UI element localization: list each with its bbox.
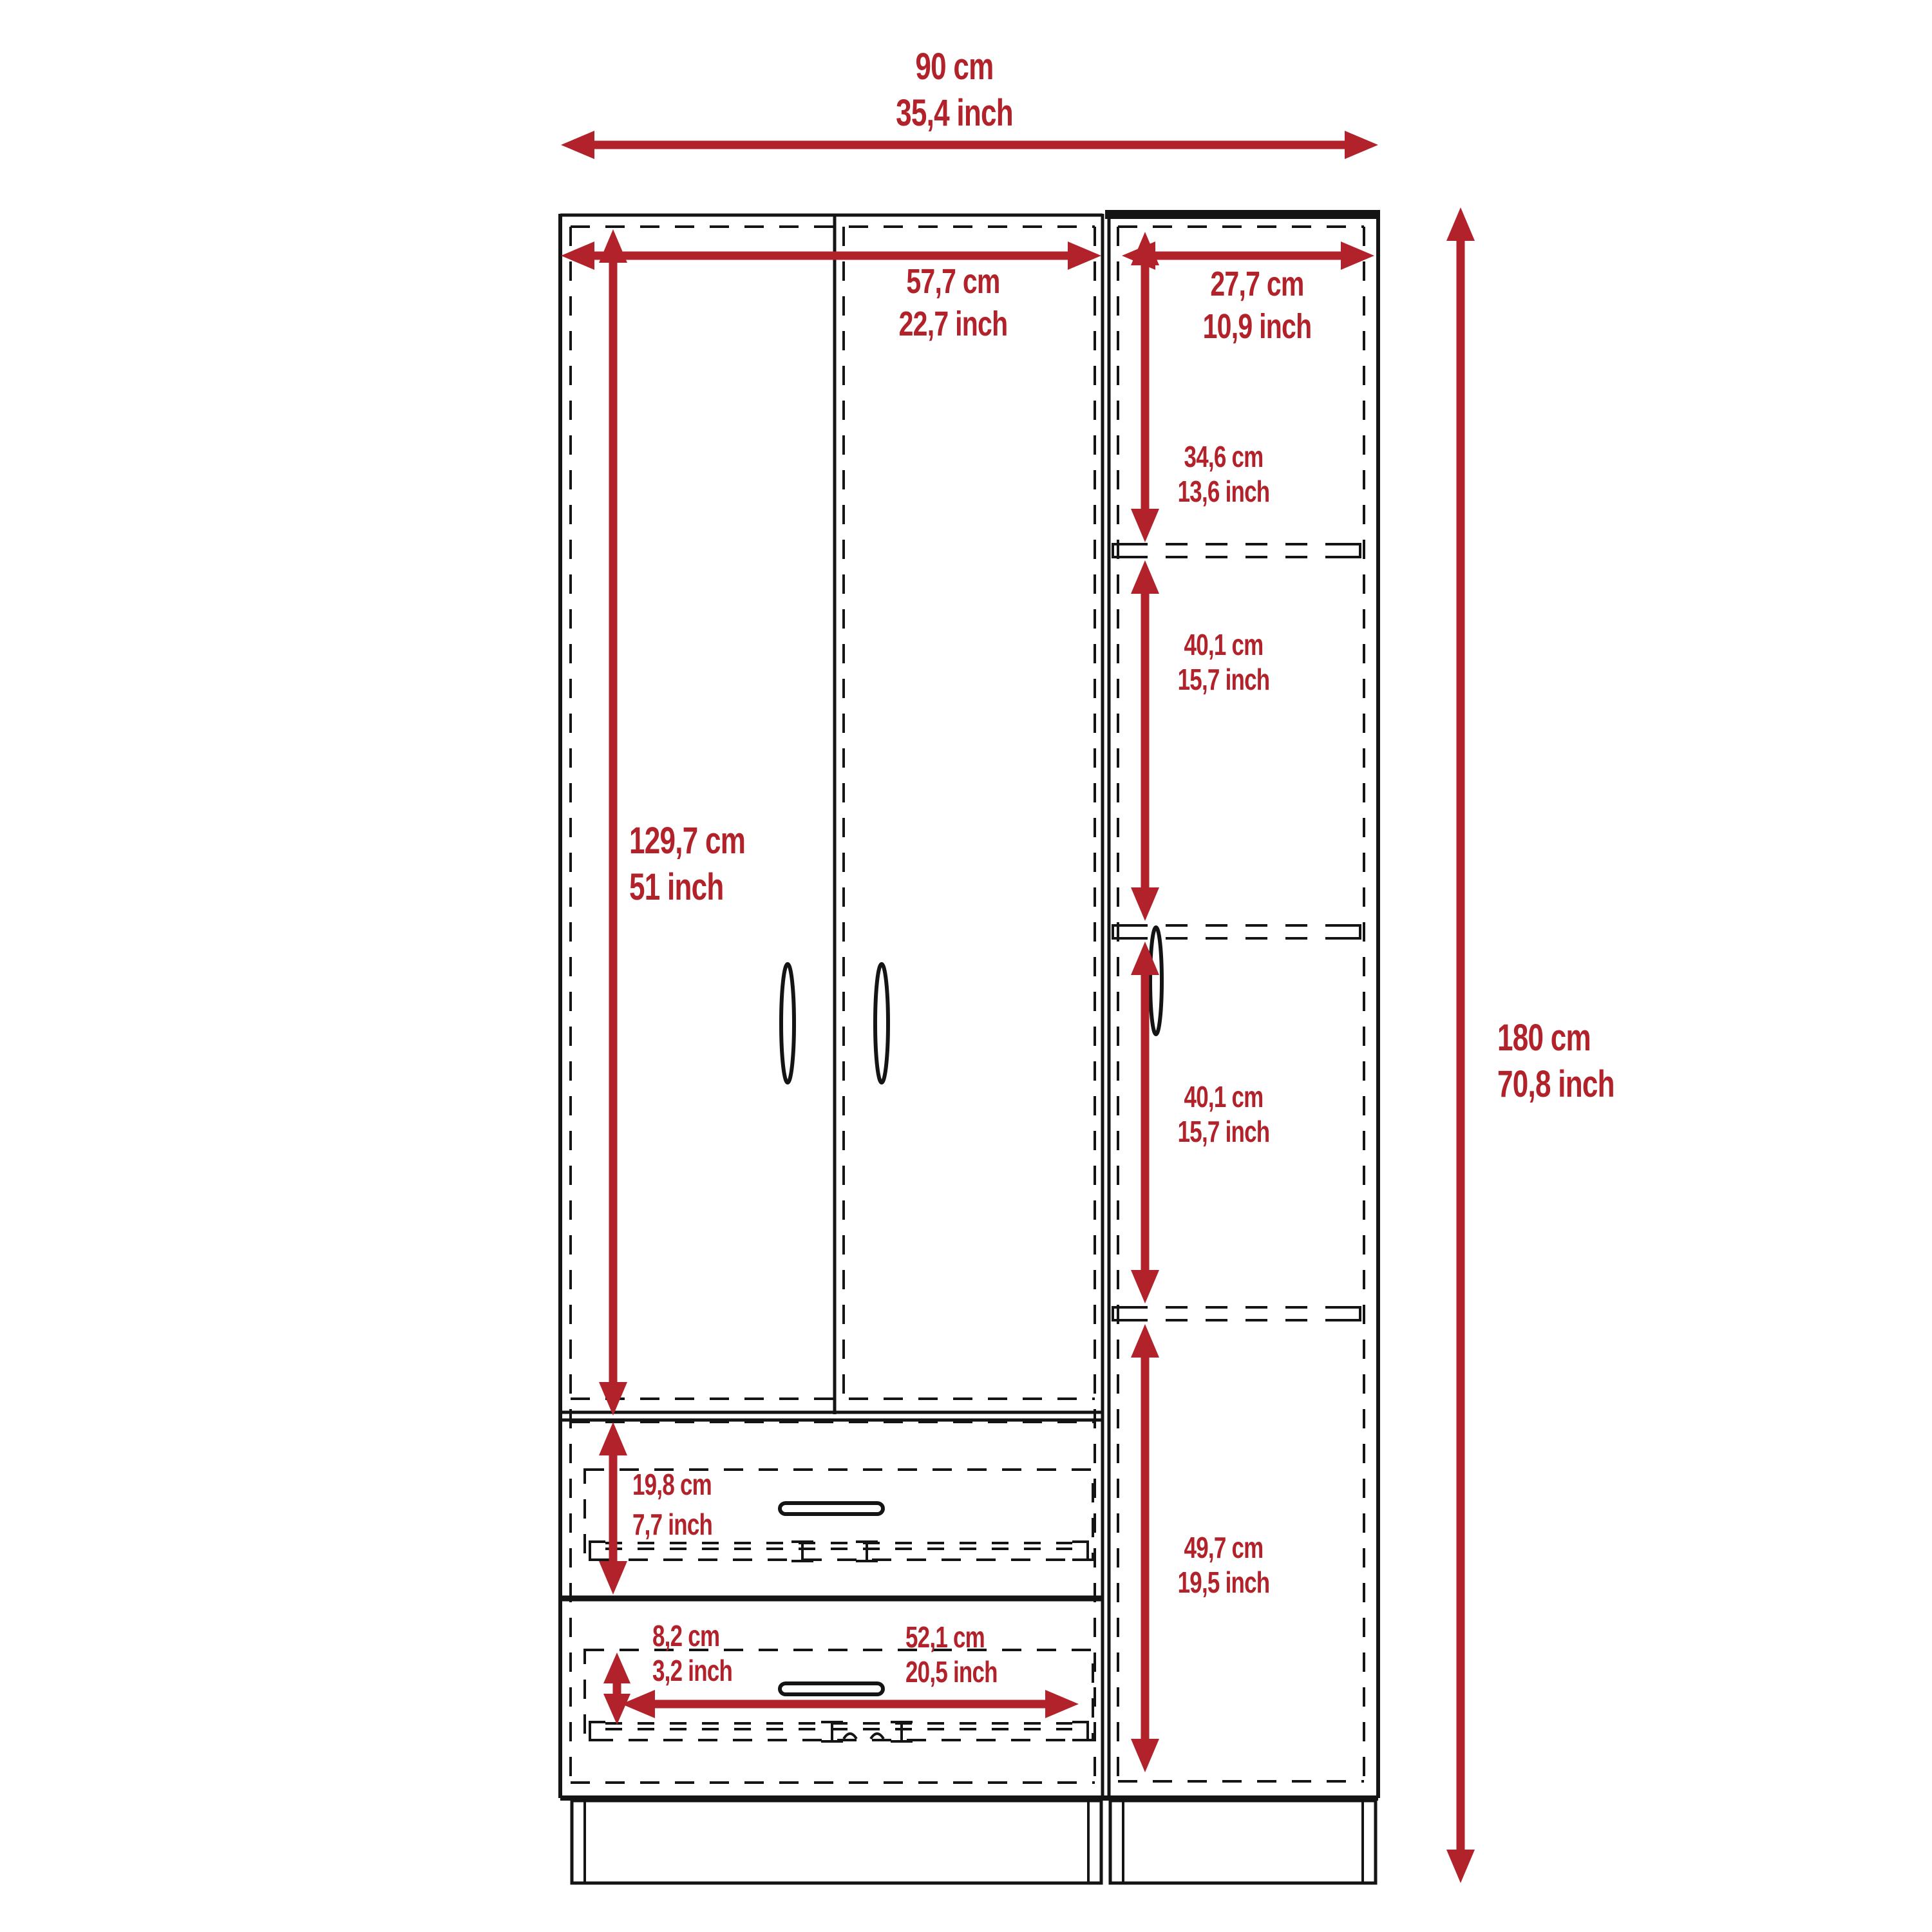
dim-upper-shelf: 34,6 cm 13,6 inch [1178, 439, 1270, 509]
arrow-bottom-drawer-height [603, 1653, 630, 1725]
dim-total-height: 180 cm 70,8 inch [1497, 1015, 1615, 1108]
dim-upper-shelf-inch: 13,6 inch [1178, 474, 1270, 509]
dim-drawer-width-cm: 52,1 cm [905, 1620, 998, 1654]
arrow-drawer-height [599, 1422, 627, 1595]
left-door-handle [781, 964, 794, 1083]
wardrobe-dimension-diagram: 90 cm 35,4 inch 57,7 cm 22,7 inch 27,7 c… [0, 0, 1932, 1932]
arrow-upper-shelf [1131, 232, 1159, 542]
dim-middle-shelf: 40,1 cm 15,7 inch [1178, 627, 1270, 697]
drawer-2-handle [780, 1683, 883, 1694]
dim-door-height-cm: 129,7 cm [629, 818, 745, 864]
arrow-total-height [1446, 207, 1475, 1883]
dim-left-section-width-inch: 22,7 inch [899, 303, 1008, 345]
dim-right-section-width-inch: 10,9 inch [1203, 305, 1312, 348]
arrow-left-section-width [561, 241, 1101, 270]
dim-lower-middle-shelf-inch: 15,7 inch [1178, 1114, 1270, 1149]
dim-bottom-shelf: 49,7 cm 19,5 inch [1178, 1530, 1270, 1600]
dim-drawer-height-inch: 7,7 inch [632, 1504, 712, 1544]
dim-middle-shelf-inch: 15,7 inch [1178, 662, 1270, 697]
dim-total-width-cm: 90 cm [896, 44, 1013, 90]
dim-total-height-cm: 180 cm [1497, 1015, 1615, 1061]
dim-total-height-inch: 70,8 inch [1497, 1061, 1615, 1108]
dim-drawer-width-inch: 20,5 inch [905, 1654, 998, 1689]
dim-door-height-inch: 51 inch [629, 864, 745, 911]
right-column-top-bar [1105, 210, 1379, 219]
dim-drawer-width: 52,1 cm 20,5 inch [905, 1620, 998, 1689]
dim-middle-shelf-cm: 40,1 cm [1178, 627, 1270, 662]
right-door-handle [1150, 927, 1162, 1034]
plinth-legs [572, 1801, 1376, 1883]
dim-right-section-width-cm: 27,7 cm [1203, 263, 1312, 305]
arrow-bottom-shelf [1131, 1324, 1159, 1772]
dim-total-width: 90 cm 35,4 inch [896, 44, 1013, 137]
dim-bottom-shelf-cm: 49,7 cm [1178, 1530, 1270, 1565]
dim-drawer-height: 19,8 cm 7,7 inch [632, 1464, 712, 1544]
dim-left-section-width: 57,7 cm 22,7 inch [899, 260, 1008, 345]
dim-bottom-drawer-height-cm: 8,2 cm [652, 1618, 732, 1653]
dim-lower-middle-shelf-cm: 40,1 cm [1178, 1079, 1270, 1114]
dim-bottom-drawer-height: 8,2 cm 3,2 inch [652, 1618, 732, 1688]
center-door-handle [875, 964, 888, 1083]
dim-upper-shelf-cm: 34,6 cm [1178, 439, 1270, 474]
dim-bottom-shelf-inch: 19,5 inch [1178, 1565, 1270, 1600]
drawer-1-handle [780, 1503, 883, 1514]
dim-bottom-drawer-height-inch: 3,2 inch [652, 1653, 732, 1688]
dim-total-width-inch: 35,4 inch [896, 90, 1013, 137]
dim-drawer-height-cm: 19,8 cm [632, 1464, 712, 1504]
dim-door-height: 129,7 cm 51 inch [629, 818, 745, 911]
dim-left-section-width-cm: 57,7 cm [899, 260, 1008, 303]
arrow-door-height [599, 229, 627, 1416]
arrow-middle-shelf [1131, 560, 1159, 921]
dim-lower-middle-shelf: 40,1 cm 15,7 inch [1178, 1079, 1270, 1149]
dim-right-section-width: 27,7 cm 10,9 inch [1203, 263, 1312, 348]
